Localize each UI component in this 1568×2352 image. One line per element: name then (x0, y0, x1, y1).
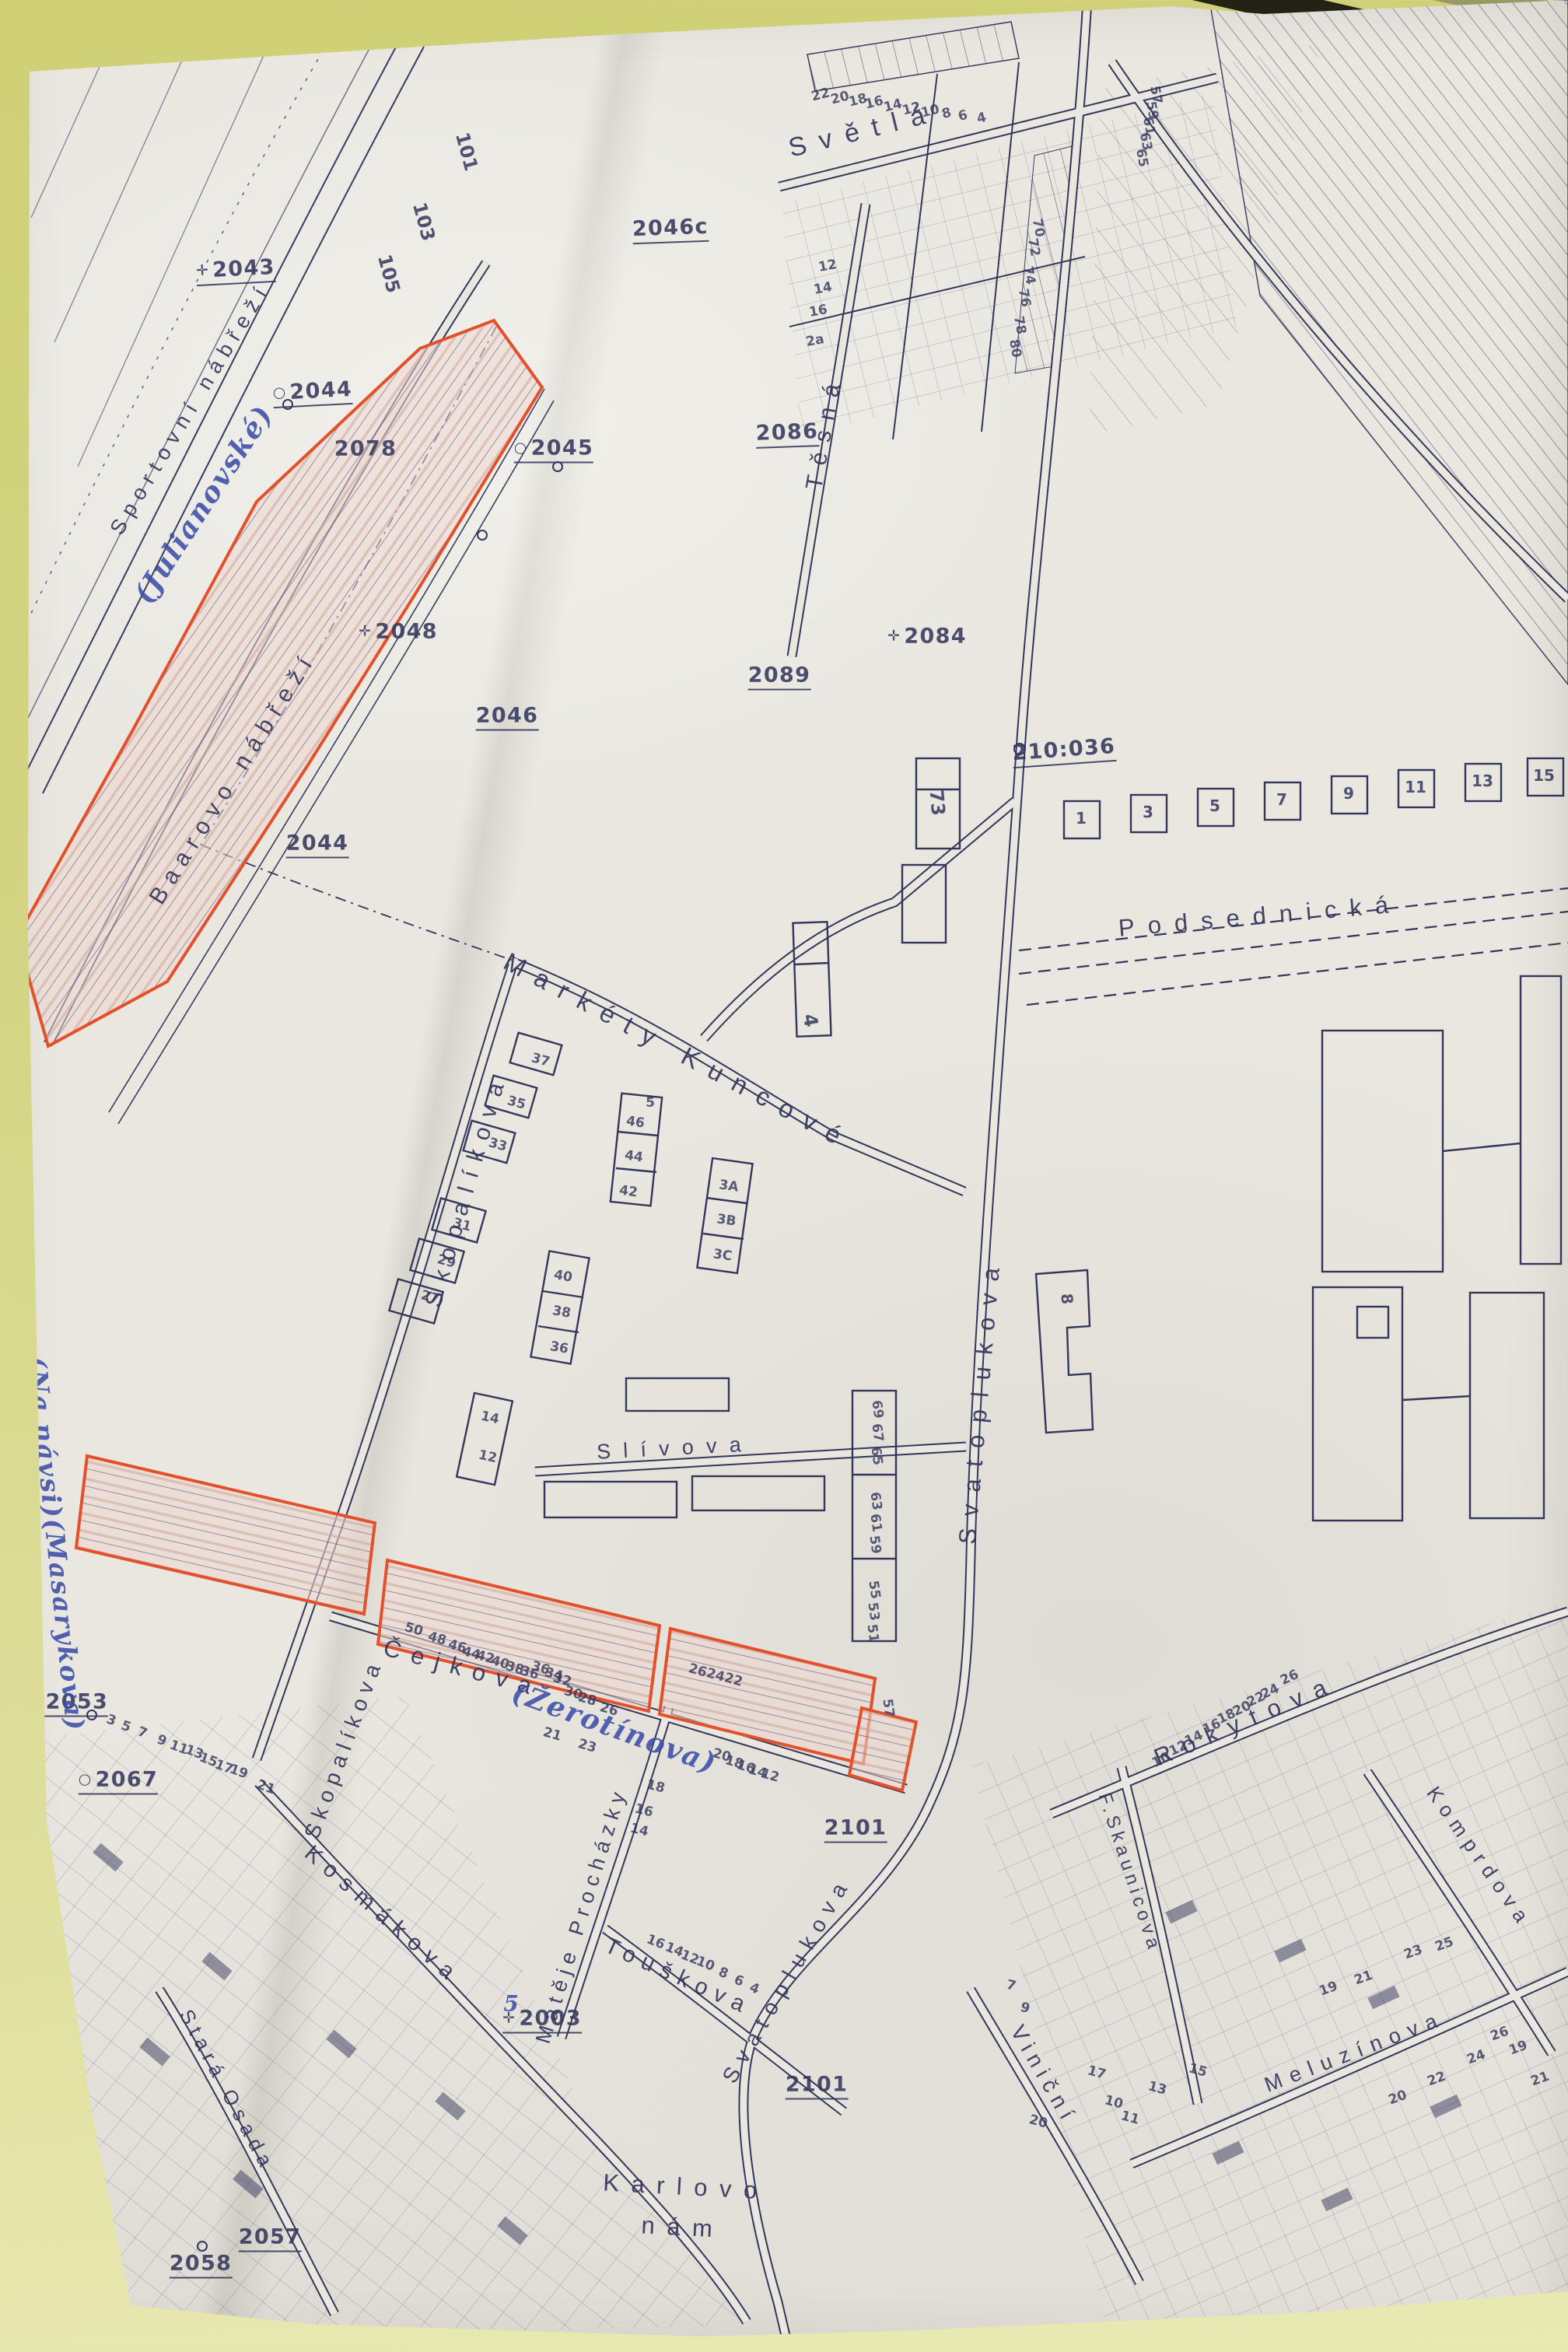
house-number: 10 (1103, 2092, 1125, 2112)
survey-number: ✛2084 (887, 625, 967, 649)
building-number: 103 (408, 200, 439, 243)
paper-sheet: SvětláTěsnáSportovní nábřežíBaarovo nábř… (0, 0, 1568, 2352)
house-number: 7 (1005, 1977, 1018, 1994)
survey-number: 2101 (786, 2073, 849, 2100)
house-number: 25 (1433, 1934, 1455, 1955)
survey-marker-circle: ○ (29, 1692, 43, 1710)
house-number: 15 (1187, 2060, 1209, 2080)
survey-number: 2044 (286, 831, 349, 859)
house-number: 7 (135, 1724, 149, 1742)
house-number: 9 (1019, 2000, 1032, 2017)
house-number: 50 (403, 1619, 425, 1640)
house-number: 17 (1086, 2063, 1108, 2082)
building-number: 8 (1057, 1293, 1076, 1305)
survey-number: 2046 (476, 704, 539, 731)
house-number: 21 (254, 1777, 277, 1798)
house-number: 3B (716, 1211, 737, 1229)
house-number: 21 (1528, 2069, 1551, 2090)
house-number: 12 (817, 257, 838, 275)
house-number: 6 (732, 1972, 746, 1990)
house-number: 51 (863, 1623, 881, 1643)
survey-marker-cross: ✛ (195, 261, 209, 279)
survey-number: 2089 (748, 663, 811, 691)
street-label: Karlovo (602, 2168, 769, 2205)
survey-number: 210:036 (1011, 734, 1116, 768)
map-labels-layer: SvětláTěsnáSportovní nábřežíBaarovo nábř… (0, 0, 1568, 2352)
building-number: 1 (1076, 809, 1087, 828)
street-label: Kosmákova (299, 1841, 467, 1991)
survey-number: ○2044 (272, 377, 353, 408)
handwritten-street-name: (Julianovské) (128, 399, 280, 609)
street-label: Viniční (1006, 2021, 1083, 2129)
house-number: 65 (1132, 148, 1151, 169)
handwritten-street-name: (Na návsi)(Masarykova) (21, 1355, 90, 1733)
house-number: 22 (810, 85, 831, 104)
survey-marker-cross: ✛ (359, 622, 372, 639)
house-number: 44 (624, 1147, 644, 1165)
house-number: 21 (541, 1724, 563, 1745)
building-number: 101 (451, 130, 482, 173)
house-number: 24 (1465, 2047, 1487, 2068)
survey-number: ○2045 (514, 436, 593, 464)
street-label: Podsednická (1118, 890, 1403, 943)
house-number: 63 (866, 1491, 884, 1511)
house-number: 6 (957, 107, 969, 124)
house-number: 76 (1015, 288, 1034, 309)
house-number: 42 (618, 1182, 639, 1200)
house-number: 5 (646, 1095, 655, 1111)
house-number: 20 (1027, 2112, 1049, 2131)
building-number: 9 (1343, 784, 1354, 803)
house-number: 19 (1317, 1979, 1339, 2000)
house-number: 19 (227, 1762, 250, 1783)
building-number: 7 (1276, 790, 1287, 809)
street-label: Skopalíkova (421, 1069, 513, 1310)
survey-number: 2046c (632, 215, 709, 244)
house-number: 38 (551, 1303, 572, 1321)
photo-of-map: SvětláTěsnáSportovní nábřežíBaarovo nábř… (0, 0, 1568, 2352)
house-number: 46 (625, 1113, 646, 1131)
building-number: 15 (1533, 766, 1555, 785)
house-number: 8 (940, 105, 953, 122)
house-number: 3C (712, 1246, 733, 1264)
house-number: 11 (1119, 2108, 1141, 2127)
survey-number: 2078 (334, 437, 397, 461)
house-number: 61 (866, 1513, 884, 1533)
handwritten-street-name: (Žerotínova) (508, 1676, 722, 1780)
house-number: 69 (868, 1399, 886, 1419)
house-number: 16 (808, 302, 829, 320)
house-number: 72 (1024, 237, 1043, 258)
house-number: 57 (879, 1698, 897, 1718)
street-label: F.Skaunicova (1094, 1790, 1166, 1956)
house-number: 74 (1020, 265, 1038, 286)
house-number: 3A (718, 1177, 740, 1195)
house-number: 21 (1352, 1968, 1374, 1989)
street-label: Meluzínova (1262, 2006, 1449, 2097)
house-number: 23 (1402, 1942, 1424, 1963)
survey-marker-cross: ✛ (887, 627, 901, 644)
house-number: 12 (759, 1766, 781, 1786)
handwritten-street-name: 5 (503, 1991, 520, 2017)
house-number: 18 (645, 1776, 667, 1796)
street-label: Skopalíkova (299, 1654, 388, 1842)
house-number: 23 (576, 1736, 598, 1756)
house-number: 22 (723, 1670, 744, 1690)
house-number: 65 (867, 1446, 885, 1466)
building-number: 11 (1405, 778, 1426, 796)
house-number: 20 (1386, 2088, 1409, 2109)
survey-marker-circle: ○ (272, 383, 287, 401)
house-number: 14 (628, 1820, 650, 1839)
house-number: 8 (716, 1965, 730, 1983)
survey-number: ○2067 (79, 1768, 158, 1795)
house-number: 14 (479, 1409, 500, 1427)
street-label: Komprdova (1422, 1782, 1538, 1933)
survey-marker-circle: ○ (514, 439, 528, 456)
building-number: 5 (1209, 796, 1220, 815)
house-number: 2a (805, 331, 825, 350)
house-number: 14 (813, 279, 834, 298)
house-number: 4 (747, 1980, 761, 1998)
street-label: Svatoplukova (954, 1255, 1006, 1545)
house-number: 59 (866, 1535, 884, 1555)
house-number: 40 (553, 1267, 574, 1286)
survey-number: 2057 (239, 2225, 302, 2252)
house-number: 9 (155, 1732, 169, 1750)
survey-number: 2101 (824, 1816, 887, 1843)
house-number: 80 (1006, 338, 1024, 359)
house-number: 36 (549, 1339, 570, 1357)
house-number: 35 (506, 1093, 527, 1112)
building-number: 13 (1472, 772, 1493, 790)
house-number: 55 (865, 1580, 883, 1600)
house-number: 37 (530, 1050, 551, 1069)
house-number: 12 (477, 1447, 498, 1466)
survey-number: ✛2043 (195, 255, 275, 286)
street-label: Slívova (596, 1432, 754, 1465)
house-number: 5 (119, 1718, 133, 1736)
house-number: 78 (1010, 315, 1029, 336)
house-number: 19 (1507, 2038, 1529, 2059)
street-label: Stará Osada (174, 2005, 280, 2175)
street-label: nám (641, 2211, 726, 2244)
house-number: 4 (975, 110, 988, 127)
house-number: 22 (1425, 2069, 1447, 2090)
house-number: 70 (1029, 218, 1048, 239)
street-label: Baarovo nábřeží (145, 646, 323, 909)
building-number: 105 (373, 252, 404, 296)
survey-number: 2058 (170, 2252, 233, 2279)
house-number: 53 (864, 1601, 882, 1622)
survey-number: ✛2048 (359, 620, 438, 644)
building-number: 73 (926, 789, 950, 817)
building-number: 3 (1143, 803, 1153, 821)
house-number: 26 (1488, 2024, 1510, 2045)
street-label: Markéty Kuncové (499, 947, 857, 1156)
survey-number: 2086 (755, 419, 819, 449)
building-number: 4 (799, 1012, 822, 1028)
house-number: 67 (868, 1423, 886, 1443)
house-number: 13 (1146, 2078, 1168, 2098)
survey-marker-circle: ○ (79, 1770, 93, 1787)
house-number: 16 (633, 1801, 655, 1820)
